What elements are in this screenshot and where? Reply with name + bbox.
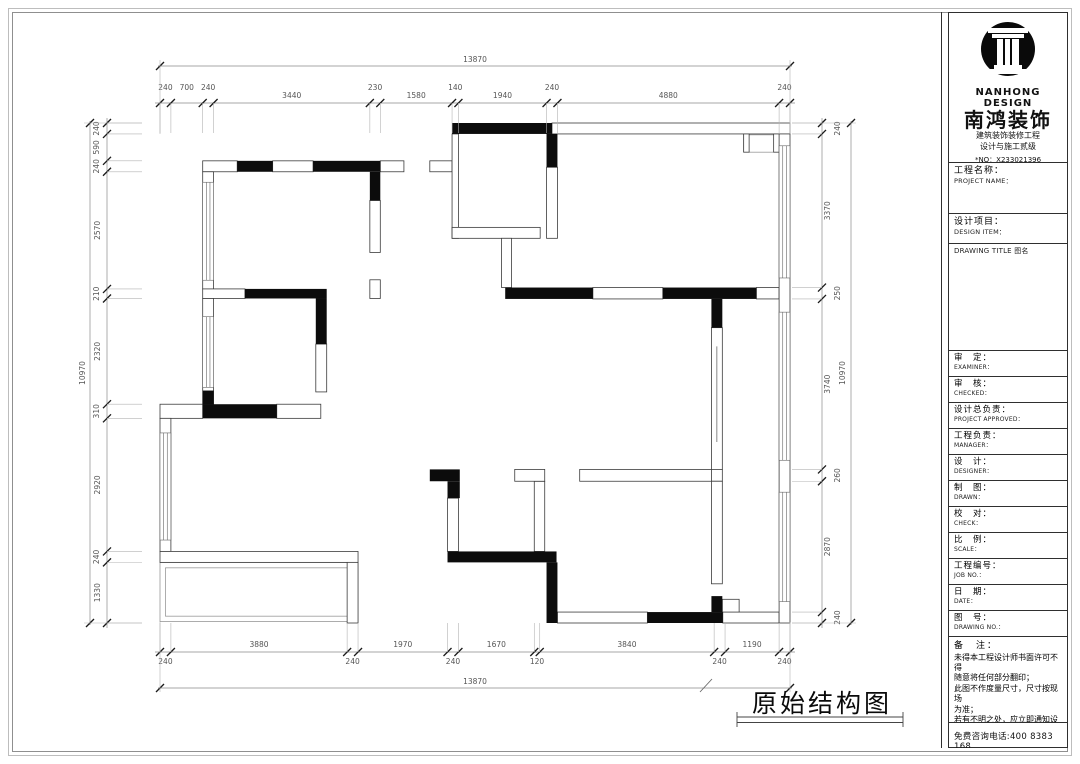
dimension-label: 240 [201, 83, 216, 92]
drawing-sheet: { "drawing_title": { "text": "原始结构图" }, … [0, 0, 1080, 764]
dimension-label: 13870 [463, 677, 487, 686]
wall-segment [347, 562, 358, 623]
signature-row: 图 号：DRAWING NO.： [949, 611, 1067, 637]
wall-segment [452, 134, 458, 238]
wall-segment [316, 344, 327, 392]
dimension-label: 230 [368, 83, 383, 92]
window-layer [160, 146, 790, 602]
note-line: 为准； [954, 705, 1062, 715]
break-mark [700, 679, 712, 692]
signature-row: 设计总负责：PROJECT APPROVED： [949, 403, 1067, 429]
wall-segment [380, 161, 404, 172]
signature-row: 校 对：CHECK： [949, 507, 1067, 533]
dimension-label: 2320 [93, 342, 102, 361]
brand-name-en: NANHONG DESIGN [954, 87, 1062, 109]
signature-rows: 审 定：EXAMINER：审 核：CHECKED：设计总负责：PROJECT A… [949, 351, 1067, 637]
dimension-layer: 2407002403440230158014019402404880240240… [78, 55, 856, 692]
wall-segment [273, 161, 313, 172]
wall-segment [744, 134, 749, 152]
drawing-title-label: DRAWING TITLE 图名 [954, 247, 1062, 256]
dimension-label: 140 [448, 83, 463, 92]
wall-segment [160, 404, 203, 418]
dimension-label: 3440 [282, 91, 301, 100]
dimension-label: 310 [92, 404, 101, 419]
drawing-title-cell: DRAWING TITLE 图名 [949, 244, 1067, 351]
structural-wall-segment [711, 299, 722, 328]
structural-wall-segment [452, 123, 552, 134]
dimension-label: 120 [530, 657, 545, 666]
dimension-label: 1330 [93, 583, 102, 602]
dimension-label: 590 [92, 140, 101, 155]
wall-segment [277, 404, 321, 418]
dimension-label: 3370 [823, 201, 832, 220]
wall-segment [370, 280, 380, 299]
structural-wall-segment [448, 551, 557, 562]
dimension-label: 10970 [78, 361, 87, 385]
dimension-label: 1580 [407, 91, 426, 100]
project-name-label-en: PROJECT NAME： [954, 177, 1062, 185]
wall-segment [723, 612, 779, 623]
dimension-label: 13870 [463, 55, 487, 64]
wall-segment [203, 289, 245, 299]
structural-wall-segment [647, 612, 722, 623]
design-item-cell: 设计项目： DESIGN ITEM： [949, 214, 1067, 244]
structural-wall-segment [203, 391, 214, 405]
dimension-label: 240 [92, 550, 101, 565]
dimension-label: 10970 [838, 361, 847, 385]
wall-segment [515, 469, 545, 481]
wall-segment [756, 288, 779, 299]
wall-segment [547, 167, 558, 238]
wall-segment [452, 227, 540, 238]
dimension-label: 700 [180, 83, 195, 92]
window [779, 312, 790, 460]
structural-wall-segment [448, 481, 460, 498]
dimension-label: 1670 [487, 640, 506, 649]
structural-wall-segment [203, 404, 277, 418]
notes-text: 未得本工程设计师书面许可不得随意将任何部分翻印；此图不作度量尺寸，尺寸按现场为准… [954, 653, 1062, 723]
structural-wall-segment [313, 161, 380, 172]
dimension-label: 3840 [617, 640, 636, 649]
dimension-label: 240 [446, 657, 461, 666]
window [779, 146, 790, 278]
structural-wall-segment [663, 288, 757, 299]
wall-segment [502, 238, 512, 287]
dimension-label: 2920 [93, 475, 102, 494]
balcony-outlines [160, 135, 779, 622]
design-item-label-cn: 设计项目： [954, 217, 1062, 228]
column-logo-icon [954, 16, 1062, 82]
structural-wall-segment [711, 596, 722, 612]
window [203, 317, 214, 388]
wall-segment [722, 599, 739, 612]
signature-row: 制 图：DRAWN： [949, 481, 1067, 507]
wall-layer [160, 123, 790, 623]
company-logo-cell: NANHONG DESIGN 南鸿装饰 建筑装饰装修工程 设计与施工贰级 *NO… [949, 13, 1067, 163]
notes-label: 备 注： [954, 641, 1062, 653]
structural-wall-segment [237, 161, 272, 172]
wall-segment [557, 612, 647, 623]
window [779, 492, 790, 601]
structural-wall-segment [547, 562, 558, 623]
wall-segment [448, 498, 459, 551]
wall-segment [580, 469, 712, 481]
note-line: 此图不作度量尺寸，尺寸按现场 [954, 684, 1062, 705]
dimension-label: 260 [833, 468, 842, 483]
dimension-label: 1190 [743, 640, 762, 649]
dimension-label: 240 [92, 159, 101, 174]
structural-wall-segment [505, 288, 593, 299]
wall-segment [160, 551, 358, 562]
structural-wall-segment [370, 172, 380, 201]
thin-wall-outline [160, 562, 358, 621]
thin-wall-outline [165, 568, 352, 616]
window [160, 433, 171, 540]
cert-number: *NO：X233021396 [954, 155, 1062, 163]
structural-wall-layer [203, 123, 757, 623]
floor-plan-drawing: 2407002403440230158014019402404880240240… [0, 0, 940, 764]
dimension-label: 4880 [659, 91, 678, 100]
dimension-label: 2570 [93, 221, 102, 240]
signature-row: 设 计：DESIGNER： [949, 455, 1067, 481]
signature-row: 审 核：CHECKED： [949, 377, 1067, 403]
signature-row: 日 期：DATE： [949, 585, 1067, 611]
drawing-title: 原始结构图 [752, 684, 892, 720]
dimension-label: 250 [833, 286, 842, 301]
title-block: NANHONG DESIGN 南鸿装饰 建筑装饰装修工程 设计与施工贰级 *NO… [948, 12, 1068, 748]
wall-segment [370, 200, 380, 252]
wall-segment [552, 123, 790, 134]
wall-segment [534, 481, 544, 551]
design-item-label-en: DESIGN ITEM： [954, 228, 1062, 236]
notes-cell: 备 注： 未得本工程设计师书面许可不得随意将任何部分翻印；此图不作度量尺寸，尺寸… [949, 637, 1067, 723]
signature-row: 审 定：EXAMINER： [949, 351, 1067, 377]
note-line: 随意将任何部分翻印； [954, 673, 1062, 683]
dimension-label: 240 [833, 610, 842, 625]
dimension-label: 210 [92, 286, 101, 301]
wall-segment [430, 161, 452, 172]
dimension-label: 2870 [823, 537, 832, 556]
dimension-label: 3740 [823, 374, 832, 393]
wall-segment [711, 481, 722, 584]
wall-segment [774, 134, 779, 152]
dimension-label: 240 [712, 657, 727, 666]
structural-wall-segment [547, 134, 558, 167]
note-line: 若有不明之处，应立即通知设计 [954, 715, 1062, 723]
structural-wall-segment [316, 298, 327, 344]
window [203, 182, 214, 280]
dimension-label: 1970 [393, 640, 412, 649]
wall-segment [203, 161, 238, 172]
project-name-label-cn: 工程名称： [954, 166, 1062, 177]
structural-wall-segment [430, 469, 460, 481]
note-line: 未得本工程设计师书面许可不得 [954, 653, 1062, 674]
signature-row: 工程编号：JOB NO.： [949, 559, 1067, 585]
structural-wall-segment [245, 289, 327, 299]
signature-row: 比 例：SCALE： [949, 533, 1067, 559]
wall-segment [593, 288, 663, 299]
project-name-cell: 工程名称： PROJECT NAME： [949, 163, 1067, 214]
dimension-label: 240 [158, 657, 173, 666]
cert-line-1: 建筑装饰装修工程 [954, 131, 1062, 142]
dimension-label: 3880 [249, 640, 268, 649]
brand-name-cn: 南鸿装饰 [954, 109, 1062, 131]
wall-segment [711, 469, 722, 481]
signature-row: 工程负责：MANAGER： [949, 429, 1067, 455]
dimension-label: 1940 [493, 91, 512, 100]
dimension-label: 240 [345, 657, 360, 666]
cert-line-2: 设计与施工贰级 [954, 142, 1062, 153]
dimension-label: 240 [545, 83, 560, 92]
dimension-label: 240 [158, 83, 173, 92]
title-block-double-line [941, 12, 942, 748]
phone-cell: 免费咨询电话:400 8383 168 [949, 723, 1067, 748]
